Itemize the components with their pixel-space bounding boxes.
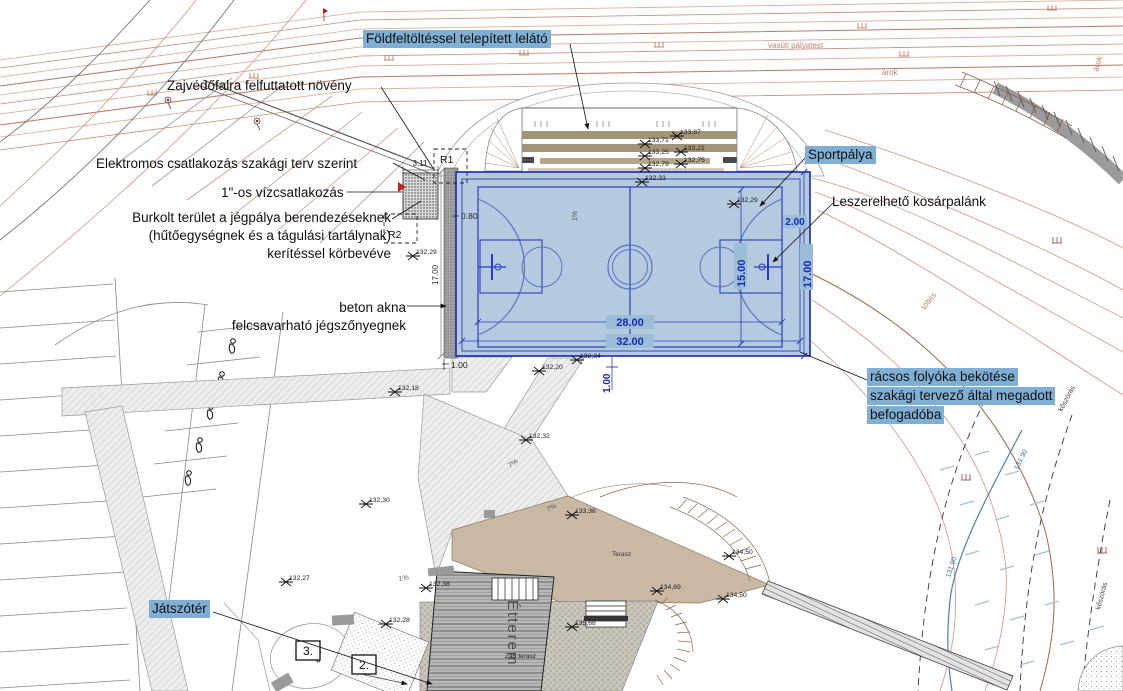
svg-text:134,50: 134,50 — [726, 592, 747, 599]
callout-noise-wall-plant: Zajvédőfalra felfuttatott növény — [167, 77, 352, 95]
callout-grandstand: Földfeltöltéssel telepített lelátó — [363, 30, 551, 48]
bench — [271, 673, 294, 691]
slope-label: 1% — [398, 574, 409, 583]
svg-text:132,79: 132,79 — [648, 161, 669, 168]
footbridge — [762, 581, 1013, 690]
dim-1-black: 1.00 — [451, 360, 468, 370]
callout-playground: Játszótér — [149, 600, 210, 618]
playground-item-3: 3. — [303, 644, 313, 658]
stream-level-label-2: 131.90 — [945, 556, 958, 579]
callout-paved-area-line2: (hűtőegységnek és a tágulási tartálynak) — [55, 227, 391, 245]
svg-text:133,25: 133,25 — [648, 149, 669, 156]
callout-concrete-shaft-line1: beton akna — [205, 299, 406, 317]
svg-text:132,28: 132,28 — [389, 617, 410, 624]
dim-17-right: 17.00 — [802, 260, 814, 288]
steep-slope-band — [994, 81, 1123, 180]
callout-electric-connection: Elektromos csatlakozás szakági terv szer… — [96, 155, 357, 173]
slope-label: 1% — [572, 211, 579, 221]
callout-paved-area-line1: Burkolt terület a jégpálya berendezésekn… — [55, 209, 391, 227]
callout-paved-area-line3: kerítéssel körbevéve — [55, 245, 391, 263]
callout-water-connection: 1"-os vízcsatlakozás — [221, 184, 344, 202]
svg-text:132,18: 132,18 — [398, 385, 419, 392]
svg-text:132,75: 132,75 — [684, 157, 705, 164]
dim-080: 0.80 — [461, 211, 478, 221]
svg-text:134,50: 134,50 — [732, 549, 753, 556]
svg-text:133,87: 133,87 — [680, 129, 701, 136]
spot-elevation: 132,29 — [406, 249, 437, 260]
dim-1-blue: 1.00 — [602, 373, 613, 393]
railway-label: vasúti pályatest — [768, 41, 824, 50]
callout-concrete-shaft-line2: felcsavarható jégszőnyegnek — [205, 317, 406, 335]
svg-text:134,69: 134,69 — [660, 584, 681, 591]
restaurant-label: Étterem — [504, 600, 521, 667]
svg-text:132,29: 132,29 — [737, 197, 758, 204]
dim-15: 15.00 — [736, 259, 748, 287]
ditch-label: árok — [882, 68, 899, 77]
svg-text:132,20: 132,20 — [542, 364, 563, 371]
callout-drain-line1: rácsos folyóka bekötése — [867, 368, 1018, 386]
terrace-label: Terasz — [612, 551, 631, 558]
ditch-label-2: árok — [1091, 54, 1104, 72]
svg-text:133,21: 133,21 — [684, 145, 705, 152]
survey-stake-icon — [323, 8, 328, 21]
callout-drain-line2: szakági tervező által megadott — [867, 387, 1055, 405]
site-plan: 3. 2. — [0, 0, 1123, 691]
callout-drain-line3: befogadóba — [867, 406, 944, 424]
bench — [484, 510, 495, 518]
dim-28: 28.00 — [616, 317, 644, 329]
spot-elevation: 132,30 — [359, 497, 390, 508]
marsh-marks — [940, 451, 1104, 665]
grandstand — [436, 83, 824, 176]
r1-label: R1 — [440, 154, 454, 166]
svg-text:132,29: 132,29 — [416, 249, 437, 256]
callout-sports-court: Sportpálya — [805, 146, 876, 164]
svg-text:132,34: 132,34 — [580, 353, 601, 360]
riprap-label: kőszórás — [1058, 384, 1078, 412]
site-plan-drawing: 3. 2. — [0, 0, 1123, 691]
svg-text:133,71: 133,71 — [648, 137, 669, 144]
dim-32: 32.00 — [616, 336, 644, 348]
callout-basketball-hoop: Leszerelhető kosárpalánk — [832, 193, 986, 211]
plant-icon — [254, 118, 260, 130]
stone-area — [1078, 646, 1123, 691]
callout-paved-area: Burkolt terület a jégpálya berendezésekn… — [55, 209, 391, 263]
svg-text:132,33: 132,33 — [645, 175, 666, 182]
spot-elevation: 132,28 — [379, 617, 410, 628]
dim-pad-width: 3.11 — [413, 159, 429, 168]
svg-text:132,30: 132,30 — [369, 497, 390, 504]
spot-elevation: 132,27 — [279, 575, 310, 586]
riprap-label-2: kőszórás — [1095, 581, 1109, 610]
callout-drain: rácsos folyóka bekötése szakági tervező … — [867, 368, 1055, 425]
svg-text:132,27: 132,27 — [289, 575, 310, 582]
embankment-label: töltés — [919, 291, 938, 312]
svg-text:132,38: 132,38 — [429, 581, 450, 588]
stream-level-label: 131.90 — [1014, 448, 1030, 470]
svg-text:133,38: 133,38 — [575, 508, 596, 515]
bench — [332, 614, 354, 625]
svg-text:135,68: 135,68 — [575, 620, 596, 627]
dim-2: 2.00 — [785, 217, 805, 228]
stairs-icon — [492, 578, 538, 600]
callout-concrete-shaft: beton akna felcsavarható jégszőnyegnek — [205, 299, 406, 335]
svg-text:132,32: 132,32 — [529, 433, 550, 440]
dim-17-left: 17.00 — [431, 264, 440, 285]
